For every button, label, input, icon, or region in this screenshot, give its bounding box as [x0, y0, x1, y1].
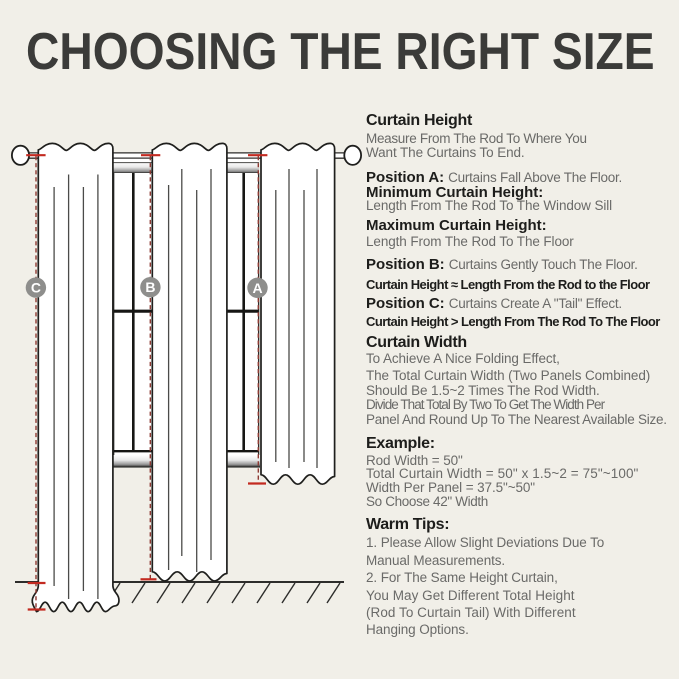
svg-text:A: A — [252, 280, 262, 296]
svg-text:C: C — [31, 280, 41, 296]
svg-text:B: B — [145, 279, 155, 295]
